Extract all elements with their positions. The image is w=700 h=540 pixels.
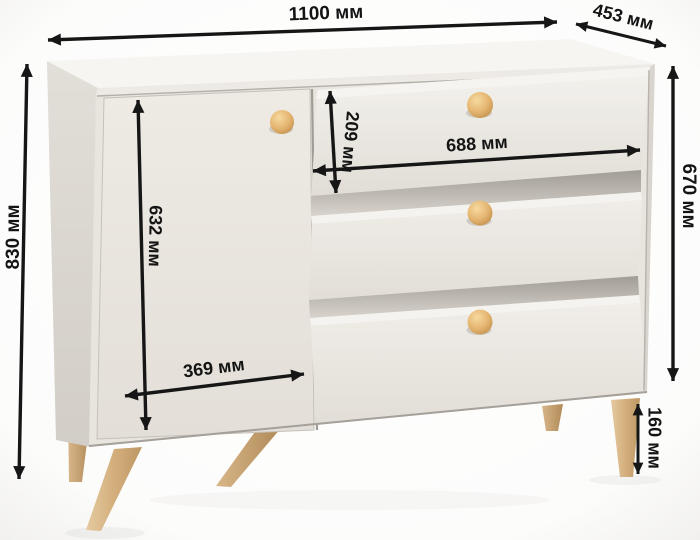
dimension-width-label: 1100 мм — [288, 2, 363, 26]
drawer-3-knob — [468, 310, 493, 335]
drawer-1-knob — [467, 92, 493, 118]
dimension-door-height-label: 632 мм — [145, 205, 166, 267]
door-knob — [270, 110, 294, 134]
diagram-canvas: 1100 мм 453 мм 830 мм 670 мм 632 мм 209 … — [0, 0, 700, 540]
drawer-2-knob — [468, 201, 493, 226]
dimension-height-label: 830 мм — [3, 204, 24, 269]
dimension-drawer-width-label: 688 мм — [446, 132, 509, 156]
furniture-dimension-diagram: 1100 мм 453 мм 830 мм 670 мм 632 мм 209 … — [0, 0, 700, 540]
dimension-leg-height-label: 160 мм — [644, 407, 664, 469]
dimension-front-height-label: 670 мм — [678, 163, 699, 228]
